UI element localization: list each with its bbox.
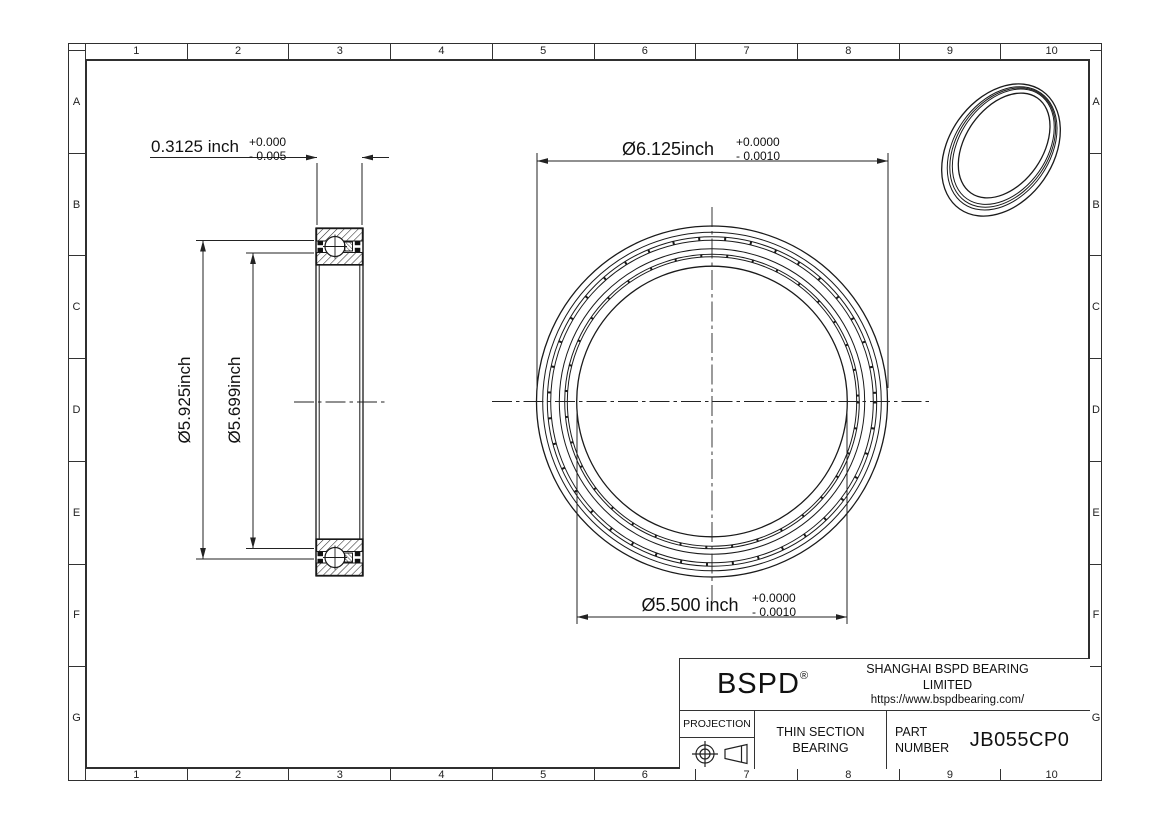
grid-col-label: 8 — [798, 43, 900, 59]
grid-col-label: 3 — [289, 43, 391, 59]
grid-col-label: 1 — [85, 769, 188, 781]
grid-col-label: 1 — [85, 43, 188, 59]
drawing-sheet: 0.3125 inch +0.000 - 0.005 Ø5.925inch Ø5… — [0, 0, 1170, 827]
grid-row-label: G — [68, 667, 85, 769]
grid-col-label: 9 — [900, 43, 1002, 59]
grid-col-label: 7 — [696, 769, 798, 781]
registered-trademark-mark: ® — [800, 670, 808, 682]
grid-rows-right: A B C D E F G — [1090, 50, 1102, 769]
grid-col-label: 2 — [188, 769, 290, 781]
grid-col-label: 4 — [391, 769, 493, 781]
grid-col-label: 9 — [900, 769, 1002, 781]
product-type-line1: THIN SECTION — [776, 724, 864, 740]
title-block-header: BSPD® SHANGHAI BSPD BEARING LIMITED http… — [680, 659, 1090, 711]
grid-col-label: 5 — [493, 769, 595, 781]
part-number-value: JB055CP0 — [949, 729, 1090, 752]
grid-row-label: E — [68, 462, 85, 565]
grid-col-label: 2 — [188, 43, 290, 59]
grid-col-label: 10 — [1001, 43, 1102, 59]
projection-cell: PROJECTION — [680, 711, 755, 769]
grid-col-label: 4 — [391, 43, 493, 59]
grid-row-label: D — [68, 359, 85, 462]
company-info: SHANGHAI BSPD BEARING LIMITED https://ww… — [845, 661, 1090, 708]
projection-label: PROJECTION — [680, 711, 754, 738]
title-block: BSPD® SHANGHAI BSPD BEARING LIMITED http… — [679, 658, 1090, 769]
grid-row-label: D — [1090, 359, 1102, 462]
part-number-label: PART NUMBER — [887, 724, 949, 757]
title-block-details: PROJECTION THIN SECTIO — [680, 711, 1090, 769]
part-number-cell: PART NUMBER JB055CP0 — [887, 711, 1090, 769]
grid-columns-bottom: 1 2 3 4 5 6 7 8 9 10 — [85, 769, 1102, 781]
grid-row-label: C — [68, 256, 85, 359]
grid-row-label: F — [1090, 565, 1102, 668]
logo-text: BSPD — [717, 668, 800, 700]
grid-col-label: 6 — [595, 43, 697, 59]
grid-col-label: 8 — [798, 769, 900, 781]
grid-columns-top: 1 2 3 4 5 6 7 8 9 10 — [85, 43, 1102, 59]
company-logo: BSPD® — [680, 668, 845, 701]
grid-col-label: 3 — [289, 769, 391, 781]
grid-row-label: G — [1090, 667, 1102, 769]
product-type-line2: BEARING — [792, 740, 848, 756]
third-angle-projection-icon — [680, 738, 754, 769]
company-name: SHANGHAI BSPD BEARING LIMITED — [845, 661, 1050, 694]
grid-row-label: A — [1090, 51, 1102, 154]
grid-row-label: E — [1090, 462, 1102, 565]
product-type-cell: THIN SECTION BEARING — [755, 711, 887, 769]
grid-rows-left: A B C D E F G — [68, 50, 85, 769]
grid-row-label: A — [68, 51, 85, 154]
grid-col-label: 5 — [493, 43, 595, 59]
grid-row-label: B — [1090, 154, 1102, 257]
grid-row-label: C — [1090, 256, 1102, 359]
grid-col-label: 6 — [595, 769, 697, 781]
grid-row-label: B — [68, 154, 85, 257]
company-website: https://www.bspdbearing.com/ — [845, 693, 1050, 708]
grid-col-label: 10 — [1001, 769, 1102, 781]
grid-col-label: 7 — [696, 43, 798, 59]
grid-row-label: F — [68, 565, 85, 668]
